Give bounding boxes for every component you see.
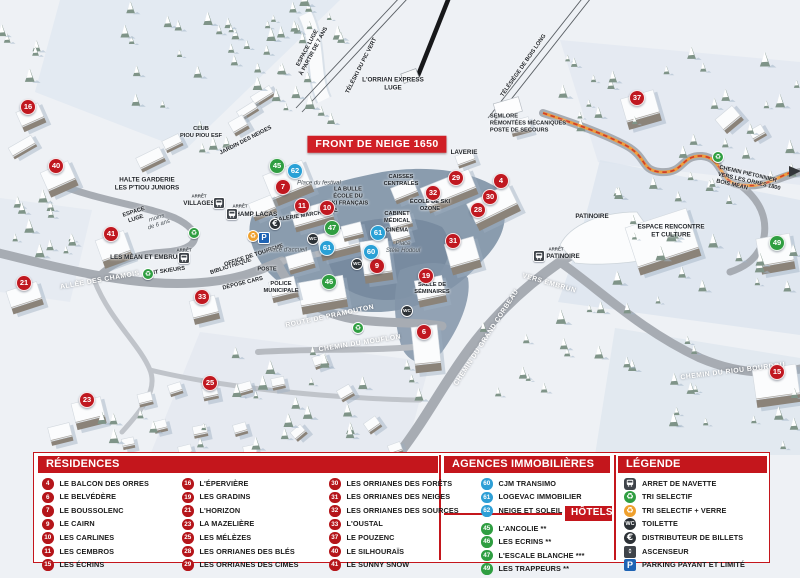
parking-icon: P <box>624 559 636 571</box>
map-marker-47: 47 <box>324 220 340 236</box>
legend-item-label: DISTRIBUTEUR DE BILLETS <box>642 533 743 542</box>
legend-residence-item: 16L'ÉPERVIÈRE <box>182 475 248 487</box>
map-marker-32: 32 <box>425 185 441 201</box>
legend-residence-item: 15LES ÉCRINS <box>42 556 104 568</box>
map-label: SEMLORE REMONTÉES MÉCANIQUES POSTE DE SE… <box>490 114 566 135</box>
recycle-icon: ♻ <box>712 151 724 163</box>
map-marker-6: 6 <box>416 324 432 340</box>
map-label: POSTE <box>257 267 276 274</box>
legend-item-label: LA MAZELIÈRE <box>200 519 255 528</box>
agence-number-badge: 62 <box>481 505 493 517</box>
legend-item-label: TRI SELECTIF + VERRE <box>642 506 727 515</box>
legend-residence-item: 32LES ORRIANES DES SOURCES <box>329 502 459 514</box>
legend-item-label: LE SILHOURAÏS <box>347 547 405 556</box>
residence-number-badge: 41 <box>329 559 341 571</box>
legend-item-label: LES CEMBROS <box>60 547 115 556</box>
legend-symbol-item: PPARKING PAYANT ET LIMITÉ <box>624 556 745 568</box>
map-marker-49: 49 <box>769 235 785 251</box>
map-label: Place d'accueil <box>267 248 307 255</box>
legend-symbol-item: ASCENSEUR <box>624 543 689 555</box>
legend-residence-item: 11LES CEMBROS <box>42 543 114 555</box>
recycle-icon: ♻ <box>142 268 154 280</box>
map-marker-11: 11 <box>294 198 310 214</box>
legend-divider-vertical-2 <box>614 455 616 560</box>
legend-symbol-item: ♻TRI SELECTIF + VERRE <box>624 502 727 514</box>
map-label: CINÉMA <box>386 228 408 235</box>
legend-item-label: ARRET DE NAVETTE <box>642 479 716 488</box>
map-label: HALTE GARDERIE LES P'TIOU JUNIORS <box>115 176 179 191</box>
map-marker-7: 7 <box>275 179 291 195</box>
map-label: SALLE DE SÉMINAIRES <box>414 282 449 296</box>
legend-item-label: NEIGE ET SOLEIL <box>499 506 563 515</box>
legend-item-label: L'ÉPERVIÈRE <box>200 479 249 488</box>
legend-residence-item: 19LES GRADINS <box>182 489 250 501</box>
residences-header: RÉSIDENCES <box>38 456 438 473</box>
legend-residence-item: 9LE CAIRN <box>42 516 95 528</box>
map-marker-19: 19 <box>418 268 434 284</box>
map-marker-16: 16 <box>20 99 36 115</box>
legend-residence-item: 41LE SUNNY SNOW <box>329 556 409 568</box>
legend-item-label: CJM TRANSIMO <box>499 479 557 488</box>
map-marker-60: 60 <box>363 244 379 260</box>
legend-residence-item: 29LES ORRIANES DES CIMES <box>182 556 299 568</box>
legend-item-label: LES ORRIANES DES SOURCES <box>347 506 459 515</box>
map-marker-25: 25 <box>202 375 218 391</box>
legend-item-label: LE BALCON DES ORRES <box>60 479 149 488</box>
legend-residence-item: 4LE BALCON DES ORRES <box>42 475 149 487</box>
map-marker-40: 40 <box>48 158 64 174</box>
map-marker-61: 61 <box>319 240 335 256</box>
residence-number-badge: 15 <box>42 559 54 571</box>
hotels-header: HÔTELS <box>565 506 612 521</box>
legend-hotel-item: 45L'ANCOLIE ** <box>481 520 546 532</box>
legend-residence-item: 37LE POUZENC <box>329 529 395 541</box>
legend-residence-item: 7LE BOUSSOLENC <box>42 502 124 514</box>
legend-item-label: L'ANCOLIE ** <box>499 524 547 533</box>
bus-icon <box>213 197 225 209</box>
map-label: POLICE MUNICIPALE <box>264 281 299 295</box>
legend-item-label: LES ORRIANES DES BLÉS <box>200 547 295 556</box>
legend-hotel-item: 49LES TRAPPEURS ** <box>481 560 569 572</box>
map-marker-33: 33 <box>194 289 210 305</box>
map-marker-45: 45 <box>269 158 285 174</box>
legend-item-label: ASCENSEUR <box>642 547 689 556</box>
map-marker-61: 61 <box>370 225 386 241</box>
bus-icon <box>533 250 545 262</box>
legend-residence-item: 23LA MAZELIÈRE <box>182 516 254 528</box>
map-label: CABINET MÉDICAL <box>384 211 410 225</box>
agences-header: AGENCES IMMOBILIÈRES <box>444 456 610 473</box>
legend-item-label: LES ORRIANES DES NEIGES <box>347 492 451 501</box>
legend-symbol-item: WCTOILETTE <box>624 516 678 528</box>
map-label: L'ORRIAN EXPRESS LUGE <box>362 76 424 91</box>
map-marker-30: 30 <box>482 189 498 205</box>
legend-item-label: TRI SELECTIF <box>642 492 692 501</box>
legend-item-label: LES TRAPPEURS ** <box>499 564 570 573</box>
map-label: ARRÊT <box>548 246 563 251</box>
map-marker-29: 29 <box>448 170 464 186</box>
legend-agence-item: 62NEIGE ET SOLEIL <box>481 502 562 514</box>
legend-symbol-item: ♻TRI SELECTIF <box>624 489 692 501</box>
map-marker-15: 15 <box>769 364 785 380</box>
legend-symbol-item: €DISTRIBUTEUR DE BILLETS <box>624 529 743 541</box>
map-marker-37: 37 <box>629 90 645 106</box>
map-marker-23: 23 <box>79 392 95 408</box>
legend-item-label: LE BELVÉDÈRE <box>60 492 117 501</box>
legend-residence-item: 40LE SILHOURAÏS <box>329 543 404 555</box>
map-marker-9: 9 <box>369 258 385 274</box>
legend-symbol-item: ARRET DE NAVETTE <box>624 475 716 487</box>
front-de-neige-banner: FRONT DE NEIGE 1650 <box>307 136 446 153</box>
legend-item-label: TOILETTE <box>642 519 678 528</box>
map-label: CAISSES CENTRALES <box>384 174 419 188</box>
map-label: ESPACE RENCONTRE ET CULTURE <box>637 223 704 238</box>
legend-residence-item: 28LES ORRIANES DES BLÉS <box>182 543 295 555</box>
legend-item-label: LES MÉLÈZES <box>200 533 252 542</box>
map-marker-21: 21 <box>16 275 32 291</box>
legende-header: LÉGENDE <box>618 456 767 473</box>
map-marker-46: 46 <box>321 274 337 290</box>
legend-agence-item: 60CJM TRANSIMO <box>481 475 556 487</box>
bus-icon <box>226 208 238 220</box>
map-label: LAVERIE <box>451 149 478 157</box>
wc-icon: WC <box>401 305 413 317</box>
map-marker-28: 28 <box>470 202 486 218</box>
map-label: ARRÊT <box>191 193 206 198</box>
map-marker-41: 41 <box>103 226 119 242</box>
wc-icon: WC <box>351 258 363 270</box>
map-marker-4: 4 <box>493 173 509 189</box>
legend-hotel-item: 47L'ESCALE BLANCHE *** <box>481 547 585 559</box>
legend-item-label: LOGEVAC IMMOBILIER <box>499 492 582 501</box>
legend-item-label: LES CARLINES <box>60 533 115 542</box>
map-label: Place Stèle Hodoul <box>386 241 420 255</box>
map-marker-62: 62 <box>287 163 303 179</box>
legend-item-label: L'ESCALE BLANCHE *** <box>499 551 585 560</box>
legend-residence-item: 30LES ORRIANES DES FORÊTS <box>329 475 452 487</box>
bus-icon <box>178 252 190 264</box>
parking-icon: P <box>258 232 270 244</box>
map-marker-31: 31 <box>445 233 461 249</box>
map-marker-10: 10 <box>319 200 335 216</box>
resort-map-page: ESPACE LUGE à partir de 7 ansTÉLÉSKI DU … <box>0 0 800 565</box>
legend-item-label: LE BOUSSOLENC <box>60 506 124 515</box>
map-label: ÉCOLE DE SKI OZONE <box>410 199 450 213</box>
legend-item-label: L'HORIZON <box>200 506 241 515</box>
residence-number-badge: 29 <box>182 559 194 571</box>
map-label: VILLAGES <box>183 200 215 208</box>
legend-residence-item: 31LES ORRIANES DES NEIGES <box>329 489 450 501</box>
recycle-icon: ♻ <box>188 227 200 239</box>
map-label: LES MÉAN ET EMBRUN <box>110 254 182 262</box>
legend-panel: RÉSIDENCES AGENCES IMMOBILIÈRES HÔTELS L… <box>33 452 770 563</box>
legend-residence-item: 25LES MÉLÈZES <box>182 529 251 541</box>
legend-residence-item: 21L'HORIZON <box>182 502 240 514</box>
map-label: PATINOIRE <box>575 213 608 221</box>
legend-agence-item: 61LOGEVAC IMMOBILIER <box>481 489 582 501</box>
legend-item-label: LE CAIRN <box>60 519 95 528</box>
recycle-icon: ♻ <box>352 322 364 334</box>
wc-icon: WC <box>307 233 319 245</box>
legend-hotel-item: 46LES ECRINS ** <box>481 533 551 545</box>
map-label: PATINOIRE <box>546 253 579 261</box>
legend-residence-item: 33L'OUSTAL <box>329 516 383 528</box>
legend-residence-item: 10LES CARLINES <box>42 529 114 541</box>
euro-icon: € <box>269 218 281 230</box>
legend-item-label: L'OUSTAL <box>347 519 383 528</box>
legend-item-label: LES GRADINS <box>200 492 251 501</box>
legend-item-label: LES ECRINS ** <box>499 537 552 546</box>
legend-item-label: LES ORRIANES DES FORÊTS <box>347 479 453 488</box>
legend-residence-item: 6LE BELVÉDÈRE <box>42 489 116 501</box>
map-label: CLUB PIOU PIOU ESF <box>180 126 222 140</box>
legend-item-label: LE POUZENC <box>347 533 395 542</box>
